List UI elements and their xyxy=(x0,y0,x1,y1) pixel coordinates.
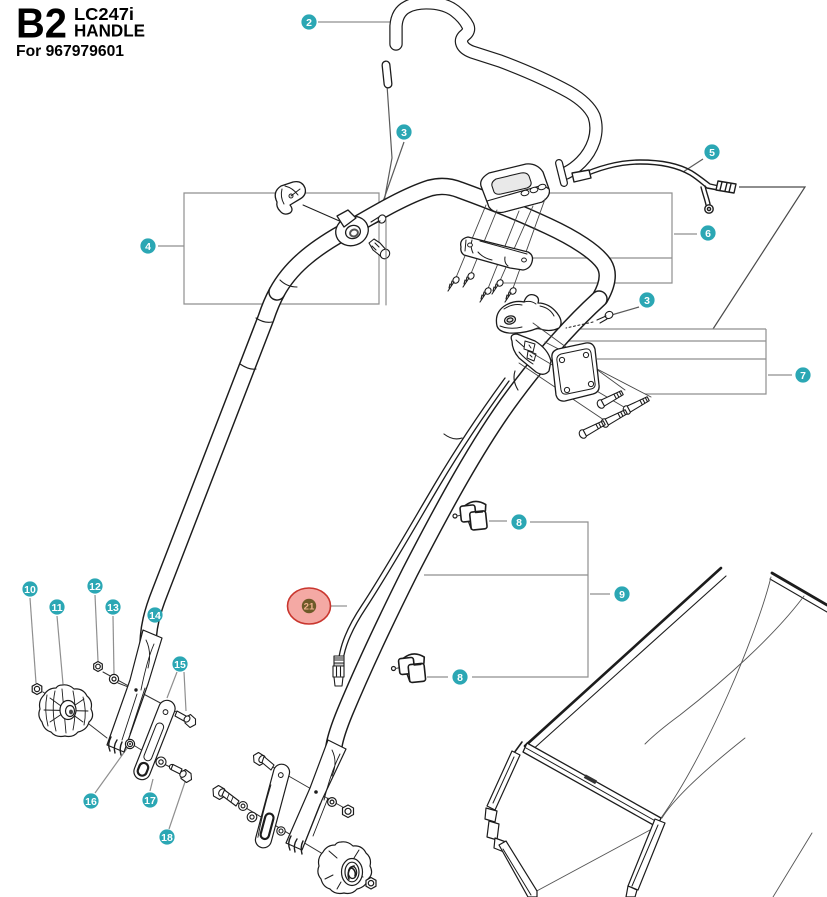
svg-text:12: 12 xyxy=(89,581,101,593)
svg-text:9: 9 xyxy=(619,589,625,601)
svg-text:3: 3 xyxy=(644,295,650,307)
svg-text:2: 2 xyxy=(306,17,312,29)
svg-text:10: 10 xyxy=(24,584,36,596)
svg-text:4: 4 xyxy=(145,241,151,253)
svg-text:21: 21 xyxy=(304,602,315,613)
svg-text:13: 13 xyxy=(107,602,119,614)
svg-text:7: 7 xyxy=(800,370,806,382)
svg-text:For 967979601: For 967979601 xyxy=(16,43,124,60)
svg-text:18: 18 xyxy=(161,832,173,844)
svg-text:8: 8 xyxy=(516,517,522,529)
svg-text:8: 8 xyxy=(457,672,463,684)
svg-text:5: 5 xyxy=(709,147,715,159)
svg-text:HANDLE: HANDLE xyxy=(74,21,145,41)
svg-text:17: 17 xyxy=(144,795,156,807)
svg-text:16: 16 xyxy=(85,796,97,808)
svg-text:11: 11 xyxy=(51,602,62,614)
svg-text:14: 14 xyxy=(149,610,161,622)
svg-text:6: 6 xyxy=(705,228,711,240)
svg-text:3: 3 xyxy=(401,127,407,139)
svg-text:15: 15 xyxy=(174,659,186,671)
svg-text:B2: B2 xyxy=(16,0,67,47)
